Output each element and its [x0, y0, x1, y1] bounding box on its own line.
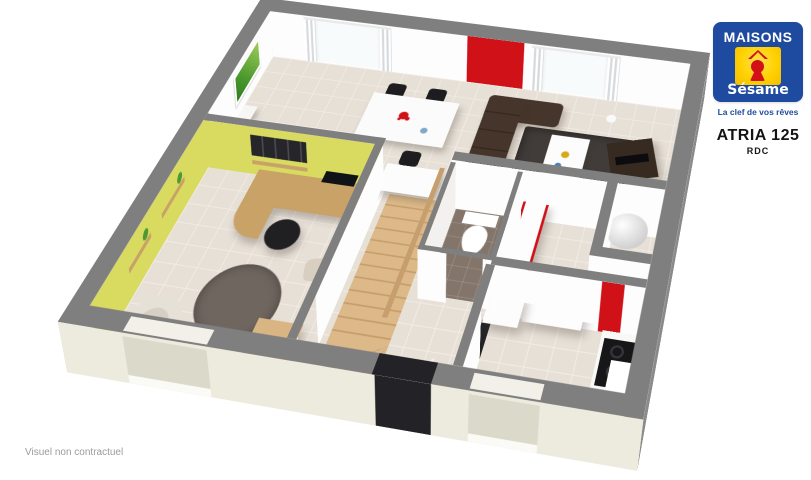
keyhole-icon-stem — [750, 70, 765, 81]
logo-brand-top: MAISONS — [713, 29, 803, 45]
plan-model-name: ATRIA 125 — [688, 127, 811, 145]
maisons-sesame-logo: MAISONS Sésame — [713, 22, 803, 102]
brand-tagline: La clef de vos rêves — [688, 107, 811, 117]
logo-yellow-square — [735, 47, 781, 85]
plan-level: RDC — [688, 146, 811, 156]
logo-brand-bottom: Sésame — [713, 82, 803, 98]
page: MAISONS Sésame La clef de vos rêves ATRI… — [0, 0, 811, 480]
roof-icon — [748, 50, 768, 59]
front-door-outer — [375, 375, 431, 435]
floor-plan-3d — [67, 42, 704, 470]
office-window-outer — [122, 336, 211, 397]
disclaimer-text: Visuel non contractuel — [25, 447, 123, 458]
kitchen-window-outer — [468, 394, 540, 453]
